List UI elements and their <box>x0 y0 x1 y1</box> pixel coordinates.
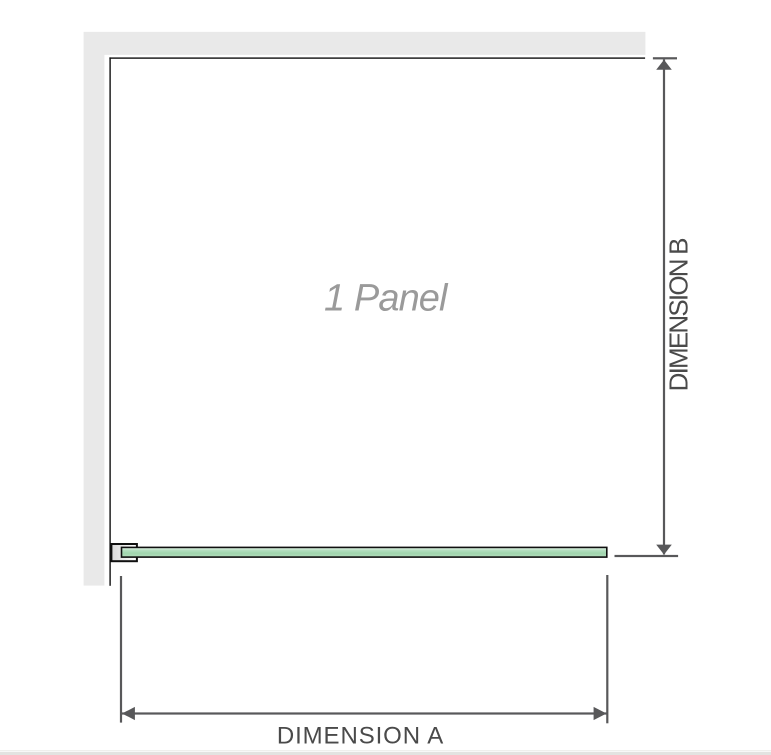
svg-text:DIMENSION B: DIMENSION B <box>664 239 694 392</box>
svg-text:1 Panel: 1 Panel <box>324 278 449 320</box>
svg-text:DIMENSION A: DIMENSION A <box>277 723 444 750</box>
